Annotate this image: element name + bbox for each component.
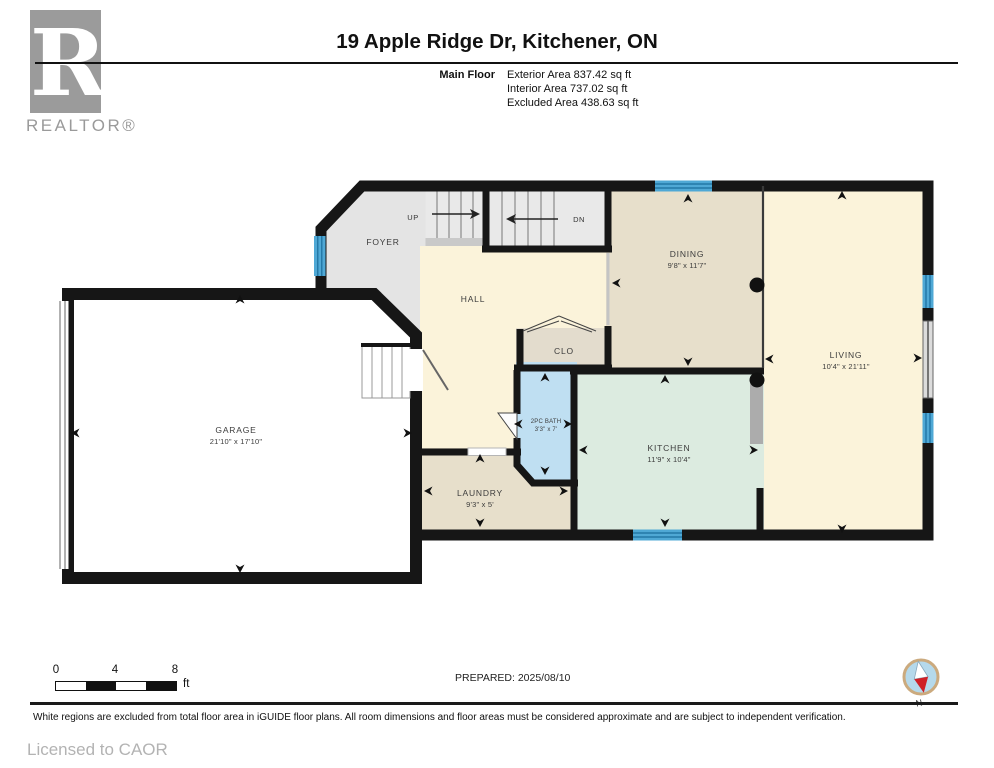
- dining-dims: 9'8" x 11'7": [668, 261, 707, 270]
- scale-segment: [56, 682, 86, 690]
- dining-label: DINING: [670, 249, 705, 259]
- kitchen-label: KITCHEN: [648, 443, 691, 453]
- dining-window: [655, 181, 712, 192]
- laundry-label: LAUNDRY: [457, 488, 503, 498]
- living-window-upper: [923, 275, 934, 308]
- scale-bar: [55, 681, 177, 691]
- stairs-up-label: UP: [407, 213, 418, 222]
- kitchen-window: [633, 530, 682, 541]
- stairs-down: [490, 190, 605, 246]
- footer-divider-line: [30, 702, 958, 705]
- hall-label: HALL: [461, 294, 485, 304]
- bath-dims: 3'3" x 7': [535, 427, 558, 433]
- stairs-down-floor: [490, 190, 605, 246]
- scale-tick-8: 8: [168, 664, 182, 676]
- scale-segment: [116, 682, 146, 690]
- wall-post-upper: [750, 278, 765, 293]
- scale-unit: ft: [183, 678, 189, 690]
- scale-tick-0: 0: [49, 664, 63, 676]
- bath-label: 2PC BATH: [531, 419, 562, 425]
- garage-door-opening: [58, 301, 69, 569]
- garage-entry-opening: [409, 349, 423, 391]
- room-living-floor: [762, 184, 930, 536]
- room-garage-outline: [68, 294, 416, 578]
- laundry-dims: 9'3" x 5': [466, 500, 494, 509]
- scale-tick-4: 4: [108, 664, 122, 676]
- living-window-lower: [923, 413, 934, 443]
- closet-label: CLO: [554, 346, 574, 356]
- floorplan-page: R REALTOR® 19 Apple Ridge Dr, Kitchener,…: [0, 0, 994, 768]
- scale-segment: [86, 682, 116, 690]
- stairs-down-label: DN: [573, 215, 585, 224]
- garage-stairs-floor: [362, 346, 410, 398]
- foyer-label: FOYER: [366, 237, 399, 247]
- stairs-up: [426, 183, 486, 246]
- prepared-date: PREPARED: 2025/08/10: [455, 672, 570, 684]
- disclaimer-text: White regions are excluded from total fl…: [33, 712, 953, 723]
- kitchen-dims: 11'9" x 10'4": [647, 455, 690, 464]
- room-dining-floor: [606, 184, 766, 372]
- living-label: LIVING: [830, 350, 863, 360]
- garage-door: [58, 301, 69, 569]
- scale-segment: [146, 682, 176, 690]
- stairs-up-landing: [426, 238, 486, 246]
- garage-stairs: [361, 345, 411, 398]
- floorplan-svg: GARAGE 21'10" x 17'10" FOYER HALL CLO DI…: [0, 0, 994, 768]
- license-text: Licensed to CAOR: [27, 740, 168, 760]
- kitchen-counter: [750, 384, 763, 444]
- living-dims: 10'4" x 21'11": [822, 362, 870, 371]
- foyer-window: [314, 236, 326, 276]
- laundry-door-sill: [468, 448, 506, 456]
- wall-post-lower: [750, 373, 765, 388]
- garage-label: GARAGE: [215, 425, 256, 435]
- garage-dims: 21'10" x 17'10": [210, 437, 263, 446]
